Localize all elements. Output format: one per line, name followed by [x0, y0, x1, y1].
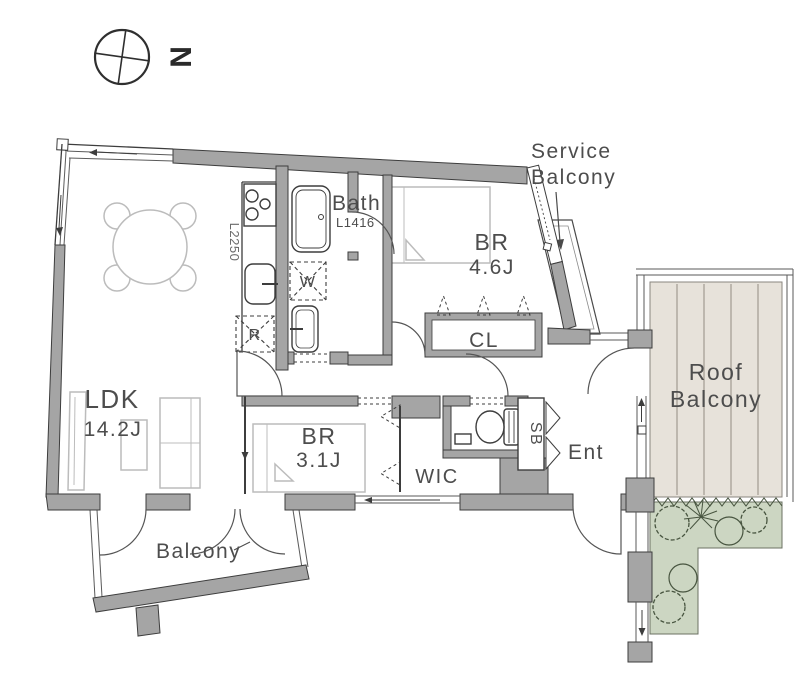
service-balcony-label-2: Balcony — [531, 166, 616, 189]
slide-arrow-head — [242, 452, 249, 460]
roof-balcony-label-1: Roof — [689, 359, 744, 385]
garden-area — [650, 498, 782, 634]
balcony-parapet — [93, 565, 309, 612]
right-wall — [626, 478, 654, 512]
washroom-bottom-wall — [288, 352, 294, 364]
slide-arrow-head — [56, 227, 63, 236]
slide-arrow-head — [364, 497, 372, 503]
washroom-bedroom-wall — [383, 175, 392, 357]
north-label: N — [164, 46, 197, 68]
bedroom1-bottom-wall — [348, 355, 392, 365]
entrance-label: Ent — [568, 441, 604, 464]
washer-mark-label: W — [300, 274, 317, 291]
roof-balcony-door-arc — [588, 348, 634, 394]
bath-fixtures — [292, 186, 330, 252]
counter-length-label: L2250 — [227, 223, 242, 262]
left-wall — [46, 245, 65, 497]
floor-plan: N — [0, 0, 800, 674]
top-left-window — [57, 139, 173, 161]
bedroom1-label: BR — [475, 229, 510, 255]
closet-label: CL — [469, 329, 499, 352]
washroom-bottom-wall — [330, 352, 348, 364]
refrigerator-mark-label: R — [248, 327, 261, 344]
bathtub — [292, 186, 330, 252]
shoe-box-label: SB — [527, 422, 544, 446]
bedroom1-area-label: 4.6J — [469, 256, 515, 279]
bath-label: Bath — [332, 192, 381, 215]
toilet-bowl — [476, 411, 504, 443]
entrance-door-arc — [573, 506, 621, 554]
kitchen-bath-wall — [276, 166, 288, 370]
stove-burner-icon — [260, 199, 270, 209]
right-wall — [628, 642, 652, 662]
hall-top-wall — [548, 328, 590, 344]
bottom-wall — [285, 494, 355, 510]
ldk-terrace-door-arc — [100, 509, 146, 555]
toilet-door-arc — [466, 354, 508, 396]
bedroom1-door-arc — [392, 322, 425, 355]
cabinet-door-icon — [546, 402, 560, 434]
left-window — [55, 144, 70, 245]
balcony-label: Balcony — [156, 540, 241, 563]
cabinet-door-icon — [546, 437, 560, 469]
bedroom2-door-arc — [237, 351, 282, 396]
bath-right-wall — [348, 252, 358, 260]
right-wall — [628, 552, 652, 602]
ldk-furniture — [68, 203, 200, 490]
balcony-parapet-step — [136, 605, 160, 636]
stove-burner-icon — [246, 208, 258, 220]
toilet-fixtures — [455, 409, 519, 445]
bottom-wall — [146, 494, 190, 510]
bottom-wall — [46, 494, 100, 510]
right-wall — [628, 330, 652, 348]
bottom-wall — [460, 494, 573, 510]
floor-plan-page: N — [0, 0, 800, 674]
ldk-label: LDK — [84, 384, 139, 414]
dining-table — [113, 210, 187, 284]
balcony — [90, 510, 309, 636]
wic-label: WIC — [415, 466, 458, 488]
right-window — [637, 396, 646, 478]
roof-balcony-label-2: Balcony — [670, 386, 762, 412]
stove-burner-icon — [246, 190, 258, 202]
tv-board — [68, 392, 86, 490]
bedroom2-label: BR — [302, 423, 337, 449]
paper-holder — [455, 434, 471, 444]
bedroom2-area-label: 3.1J — [296, 449, 342, 472]
toilet-bottom-wall — [443, 450, 528, 458]
toilet-left-wall — [443, 406, 451, 450]
bath-size-label: L1416 — [336, 215, 375, 230]
ldk-area-label: 14.2J — [84, 418, 143, 441]
slide-arrow-head — [89, 149, 97, 156]
toilet-top-wall — [443, 396, 470, 406]
toilet-tank — [504, 409, 519, 445]
service-balcony-label-1: Service — [531, 140, 612, 163]
bottom-window — [355, 496, 460, 503]
right-window — [636, 602, 648, 642]
right-window — [636, 512, 648, 552]
balcony-door-arc — [240, 509, 285, 554]
compass-icon: N — [90, 25, 196, 88]
bedroom2-top-wall — [242, 396, 358, 406]
slide-arrow — [59, 195, 61, 228]
closet-hanger-icons — [437, 296, 530, 315]
